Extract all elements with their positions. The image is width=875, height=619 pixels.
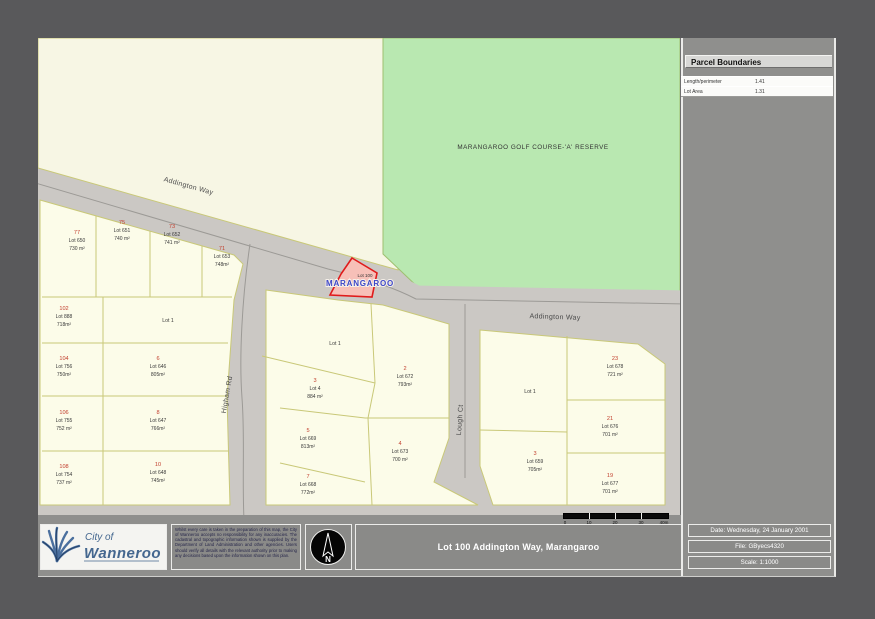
highlight-lot-label: Lot 100: [357, 273, 373, 278]
legend-row: Lot Area 1.31: [681, 86, 833, 97]
lot-area-label: 766m²: [151, 426, 166, 432]
lot-label: Lot 1: [524, 389, 536, 395]
lot-area-label: 772m²: [301, 490, 316, 496]
lot-label: Lot 668: [300, 482, 317, 488]
house-number-label: 102: [59, 306, 68, 312]
lot-label: Lot 672: [397, 374, 414, 380]
info-row-file: File: GByecs4320: [688, 540, 831, 553]
disclaimer-text: Whilst every care is taken in the prepar…: [175, 527, 297, 558]
cadastral-map[interactable]: MARANGAROO GOLF COURSE-'A' RESERVEAdding…: [38, 38, 680, 515]
house-number-label: 104: [59, 356, 68, 362]
north-label: N: [325, 555, 331, 564]
lot-label: Lot 648: [150, 470, 167, 476]
house-number-label: 73: [169, 224, 175, 230]
council-logo: City of Wanneroo: [40, 524, 167, 570]
lot-area-label: 737 m²: [56, 480, 72, 486]
lot-area-label: 740 m²: [114, 236, 130, 242]
lot-label: Lot 673: [392, 449, 409, 455]
house-number-label: 106: [59, 410, 68, 416]
lot-label: Lot 676: [602, 424, 619, 430]
lot-label: Lot 756: [56, 364, 73, 370]
house-number-label: 19: [607, 473, 613, 479]
lot-label: Lot 754: [56, 472, 73, 478]
house-number-label: 5: [306, 428, 309, 434]
lot-label: Lot 755: [56, 418, 73, 424]
house-number-label: 3: [533, 451, 536, 457]
house-number-label: 2: [403, 366, 406, 372]
lot-area-label: 813m²: [301, 444, 316, 450]
lot-area-label: 700 m²: [392, 457, 408, 463]
lot-label: Lot 677: [602, 481, 619, 487]
lot-label: Lot 678: [607, 364, 624, 370]
lot-area-label: 705m²: [528, 467, 543, 473]
house-number-label: 7: [306, 474, 309, 480]
disclaimer-box: Whilst every care is taken in the prepar…: [171, 524, 301, 570]
lot-area-label: 793m²: [398, 382, 413, 388]
lot-label: Lot 659: [527, 459, 544, 465]
logo-text-wanneroo: Wanneroo: [84, 545, 161, 562]
lot-area-label: 745m²: [151, 478, 166, 484]
house-number-label: 71: [219, 246, 225, 252]
logo-text-city-of: City of: [85, 532, 115, 543]
lot-label: Lot 646: [150, 364, 167, 370]
print-layout-window: MARANGAROO GOLF COURSE-'A' RESERVEAdding…: [0, 0, 875, 619]
house-number-label: 108: [59, 464, 68, 470]
house-number-label: 3: [313, 378, 316, 384]
house-number-label: 77: [74, 230, 80, 236]
scale-bar-line: [563, 513, 669, 519]
lot-label: Lot 4: [309, 386, 320, 392]
lot-area-label: 701 m²: [602, 432, 618, 438]
lot-label: Lot 653: [214, 254, 231, 260]
suburb-label: MARANGAROO: [326, 279, 394, 288]
lot-area-label: 884 m²: [307, 394, 323, 400]
lot-label: Lot 1: [329, 341, 341, 347]
legend-row-label: Lot Area: [684, 88, 703, 96]
lot-area-label: 701 m²: [602, 489, 618, 495]
lot-label: Lot 651: [114, 228, 131, 234]
lot-area-label: 718m²: [57, 322, 72, 328]
panel-divider: [681, 38, 683, 576]
lot-label: Lot 1: [162, 318, 174, 324]
north-arrow-icon: N: [306, 525, 351, 569]
house-number-label: 75: [119, 220, 125, 226]
legend-title: Parcel Boundaries: [685, 55, 832, 68]
north-arrow: N: [305, 524, 352, 570]
house-number-label: 21: [607, 416, 613, 422]
lot-label: Lot 652: [164, 232, 181, 238]
map-sheet: MARANGAROO GOLF COURSE-'A' RESERVEAdding…: [38, 38, 836, 577]
golf-course: [383, 38, 680, 292]
lot-area-label: 721 m²: [607, 372, 623, 378]
lot-area-label: 741 m²: [164, 240, 180, 246]
lot-area-label: 750m²: [57, 372, 72, 378]
kangaroo-paw-logo-icon: City of Wanneroo: [41, 525, 166, 569]
lot-label: Lot 650: [69, 238, 86, 244]
map-canvas[interactable]: MARANGAROO GOLF COURSE-'A' RESERVEAdding…: [38, 38, 681, 515]
legend-row-value: 1.31: [755, 88, 765, 96]
lot-area-label: 730 m²: [69, 246, 85, 252]
info-row-date: Date: Wednesday, 24 January 2001: [688, 524, 831, 537]
lot-label: Lot 669: [300, 436, 317, 442]
house-number-label: 8: [156, 410, 159, 416]
house-number-label: 4: [398, 441, 401, 447]
parcel-block: [480, 330, 665, 505]
legend-row-label: Length/perimeter: [684, 78, 722, 86]
house-number-label: 23: [612, 356, 618, 362]
lot-label: Lot 647: [150, 418, 167, 424]
legend-row-value: 1.41: [755, 78, 765, 86]
map-title: Lot 100 Addington Way, Marangaroo: [355, 524, 682, 570]
lot-area-label: 748m²: [215, 262, 230, 268]
lot-area-label: 805m²: [151, 372, 166, 378]
lot-label: Lot 888: [56, 314, 73, 320]
house-number-label: 10: [155, 462, 161, 468]
info-row-scale: Scale: 1:1000: [688, 556, 831, 569]
golf-course-label: MARANGAROO GOLF COURSE-'A' RESERVE: [457, 144, 608, 151]
lot-area-label: 752 m²: [56, 426, 72, 432]
house-number-label: 6: [156, 356, 159, 362]
